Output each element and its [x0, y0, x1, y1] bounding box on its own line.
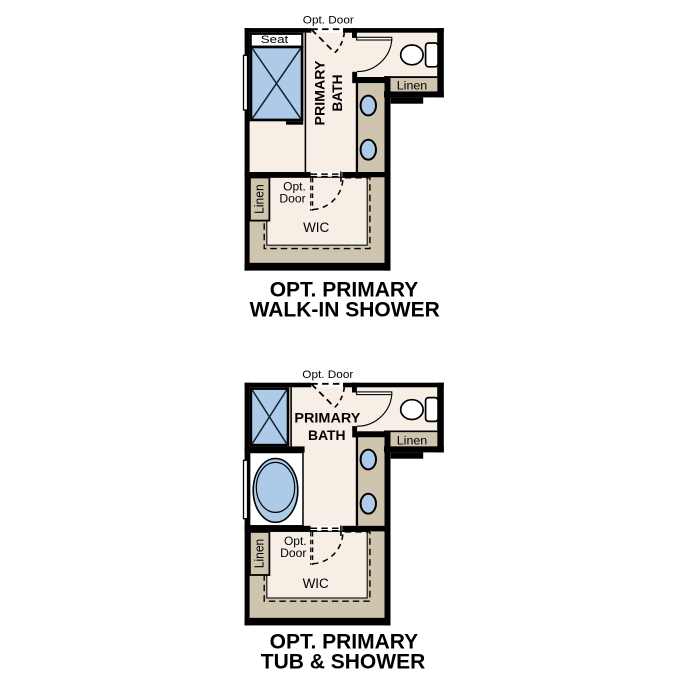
svg-text:WALK-IN SHOWER: WALK-IN SHOWER	[250, 299, 440, 322]
svg-text:Linen: Linen	[397, 433, 428, 447]
svg-text:Linen: Linen	[253, 539, 267, 569]
svg-text:PRIMARY: PRIMARY	[313, 61, 328, 126]
svg-text:BATH: BATH	[330, 75, 345, 112]
svg-text:Door: Door	[279, 191, 305, 205]
svg-text:Opt. Door: Opt. Door	[303, 15, 354, 27]
svg-text:Linen: Linen	[253, 184, 267, 214]
svg-text:Seat: Seat	[261, 34, 288, 46]
svg-text:WIC: WIC	[303, 576, 329, 591]
svg-text:BATH: BATH	[308, 428, 346, 443]
svg-text:PRIMARY: PRIMARY	[294, 411, 360, 426]
svg-text:Opt. Door: Opt. Door	[302, 369, 353, 381]
svg-text:Linen: Linen	[397, 79, 428, 93]
svg-text:TUB & SHOWER: TUB & SHOWER	[261, 650, 426, 673]
svg-text:Door: Door	[280, 546, 306, 560]
svg-text:WIC: WIC	[303, 220, 329, 235]
